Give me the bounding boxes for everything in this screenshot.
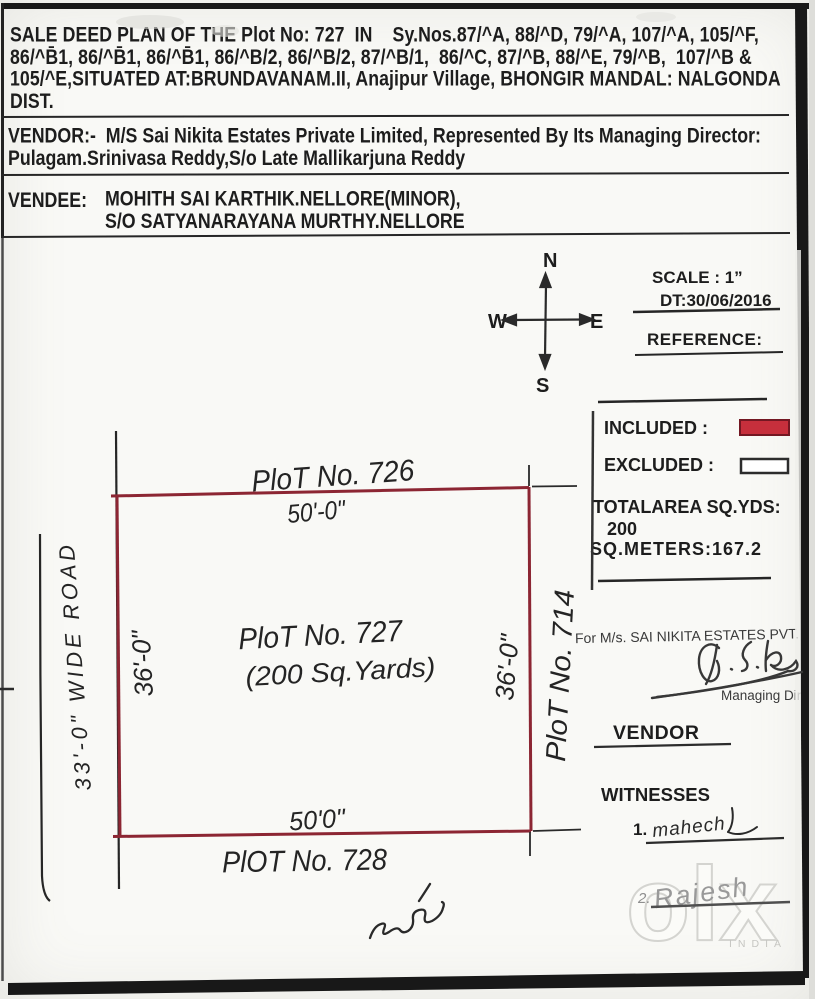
svg-text:mahech: mahech: [651, 813, 726, 842]
svg-text:50'-0": 50'-0": [286, 494, 348, 529]
svg-text:2.: 2.: [637, 890, 651, 907]
svg-text:36'-0": 36'-0": [125, 628, 159, 697]
svg-text:PloT No. 727: PloT No. 727: [238, 615, 405, 657]
svg-text:INDIA: INDIA: [729, 938, 787, 950]
svg-text:36'-0": 36'-0": [489, 631, 525, 701]
svg-text:(200 Sq.Yards): (200 Sq.Yards): [245, 652, 436, 692]
svg-text:33'-0" WIDE ROAD: 33'-0" WIDE ROAD: [54, 542, 96, 791]
svg-text:PlOT No. 728: PlOT No. 728: [222, 843, 388, 879]
svg-text:PloT No. 714: PloT No. 714: [540, 589, 580, 762]
svg-text:50'0": 50'0": [288, 802, 348, 836]
